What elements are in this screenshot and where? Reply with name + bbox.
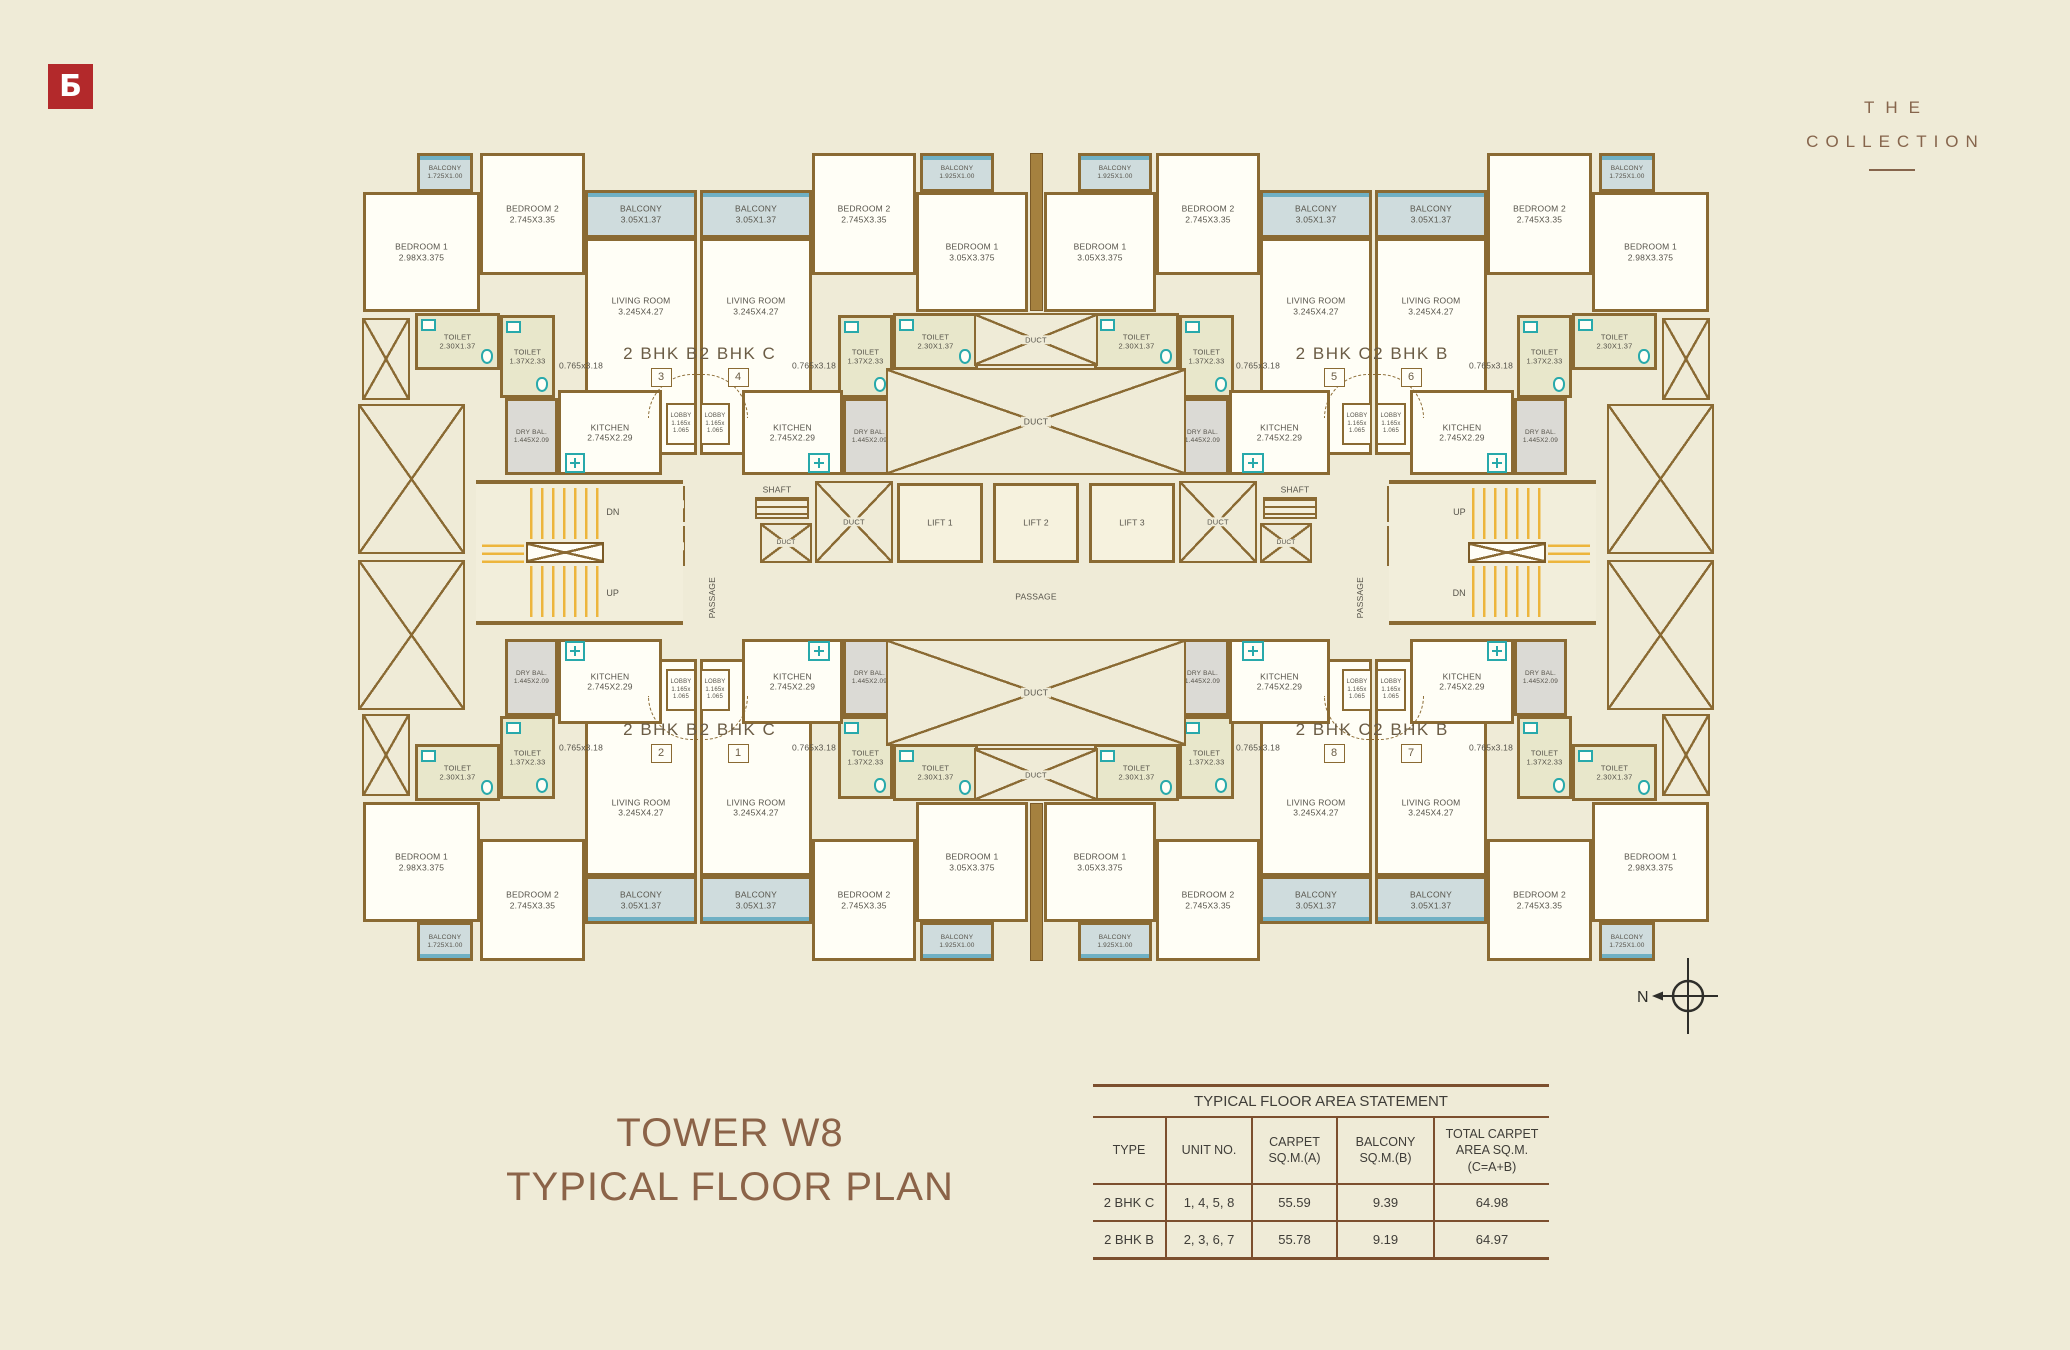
duct-main: DUCT	[886, 368, 1186, 475]
lift-2-label: LIFT 2	[998, 518, 1074, 529]
bedroom2-outer: BEDROOM 22.745X3.35	[480, 153, 585, 275]
duct-side-label: DUCT	[819, 517, 889, 526]
area-table-cell: 9.19	[1337, 1221, 1434, 1259]
shaft-duct-small: DUCT	[1260, 523, 1312, 563]
toilet-wide-outer: TOILET2.30X1.37	[415, 313, 500, 370]
toilet-tall-inner: TOILET1.37X2.33	[838, 315, 893, 398]
staircase-right-label-bottom: DN	[1453, 588, 1466, 598]
living-room-inner-label: LIVING ROOM3.245X4.27	[705, 797, 807, 818]
unit-2-number: 2	[651, 744, 672, 763]
staircase-left-part	[482, 542, 523, 564]
void-box-wide	[1607, 404, 1714, 554]
area-table-body: 2 BHK C1, 4, 5, 855.599.3964.982 BHK B2,…	[1093, 1184, 1549, 1259]
plan-title: TOWER W8 TYPICAL FLOOR PLAN	[430, 1106, 1030, 1214]
balcony-corner: BALCONY1.725X1.00	[417, 922, 473, 961]
balcony-inner-label: BALCONY3.05X1.37	[705, 203, 807, 224]
area-table-cell: 64.97	[1434, 1221, 1549, 1259]
page: Ƃ THE COLLECTION BEDROOM 12.98X3.375BEDR…	[0, 0, 2070, 1350]
staircase-left-part	[530, 488, 600, 539]
unit-6-number: 6	[1401, 368, 1422, 387]
shaft-label-label: SHAFT	[1275, 484, 1315, 495]
bedroom2-outer-label: BEDROOM 22.745X3.35	[1492, 889, 1587, 910]
bedroom2-outer: BEDROOM 22.745X3.35	[1487, 839, 1592, 961]
lobby-outer-label: LOBBY1.165x1.065	[670, 413, 692, 436]
area-table-cell: 2 BHK B	[1093, 1221, 1166, 1259]
toilet-wide-outer: TOILET2.30X1.37	[1572, 744, 1657, 801]
toilet-tall-outer-label: TOILET1.37X2.33	[1522, 748, 1567, 767]
toilet-tall-outer: TOILET1.37X2.33	[1517, 315, 1572, 398]
area-table-header: TOTAL CARPET AREA SQ.M. (C=A+B)	[1434, 1118, 1549, 1184]
dry-balcony-outer-label: DRY BAL.1.445X2.09	[1519, 669, 1562, 685]
shaft-label-label: SHAFT	[757, 484, 797, 495]
toilet-wide-inner-label: TOILET2.30X1.37	[1099, 332, 1174, 351]
void-box-wide	[358, 560, 465, 710]
void-box-narrow	[362, 714, 410, 796]
wash-point-outer	[1487, 453, 1507, 473]
bedroom1-corner: BEDROOM 12.98X3.375	[1592, 802, 1709, 922]
area-table: TYPEUNIT NO.CARPET SQ.M.(A)BALCONY SQ.M.…	[1093, 1118, 1549, 1260]
bedroom1-corner-label: BEDROOM 12.98X3.375	[368, 851, 475, 872]
plan-title-line2: TYPICAL FLOOR PLAN	[430, 1160, 1030, 1214]
lobby-inner: LOBBY1.165x1.065	[1342, 403, 1372, 445]
bedroom1-center: BEDROOM 13.05X3.375	[1044, 192, 1156, 312]
living-room-inner-label: LIVING ROOM3.245X4.27	[705, 296, 807, 317]
duct-mid-label: DUCT	[978, 770, 1094, 779]
toilet-tall-inner-label: TOILET1.37X2.33	[1184, 748, 1229, 767]
living-room-inner-label: LIVING ROOM3.245X4.27	[1265, 296, 1367, 317]
toilet-wide-outer: TOILET2.30X1.37	[1572, 313, 1657, 370]
plan-title-line1: TOWER W8	[430, 1106, 1030, 1160]
lobby-inner-label: LOBBY1.165x1.065	[704, 413, 726, 436]
unit-8-number: 8	[1324, 744, 1345, 763]
balcony-outer-label: BALCONY3.05X1.37	[590, 889, 692, 910]
duct-main-label: DUCT	[890, 416, 1182, 427]
unit-4-number: 4	[728, 368, 749, 387]
toilet-tall-outer: TOILET1.37X2.33	[500, 315, 555, 398]
lift-3: LIFT 3	[1089, 483, 1175, 563]
lobby-outer: LOBBY1.165x1.065	[1376, 669, 1406, 711]
kitchen-outer-label: KITCHEN2.745X2.29	[563, 671, 657, 692]
balcony-corner-label: BALCONY1.725X1.00	[422, 164, 468, 180]
wash-point-inner	[808, 453, 830, 473]
area-table-cell: 55.59	[1252, 1184, 1337, 1221]
area-table-cell: 55.78	[1252, 1221, 1337, 1259]
living-room-outer-label: LIVING ROOM3.245X4.27	[1380, 797, 1482, 818]
toilet-tall-outer: TOILET1.37X2.33	[1517, 716, 1572, 799]
balcony-inner-label: BALCONY3.05X1.37	[1265, 889, 1367, 910]
toilet-wide-inner-label: TOILET2.30X1.37	[898, 332, 973, 351]
area-table-cell: 64.98	[1434, 1184, 1549, 1221]
void-box-wide	[358, 404, 465, 554]
lobby-outer: LOBBY1.165x1.065	[666, 669, 696, 711]
passage-side-label: PASSAGE	[704, 570, 720, 626]
area-table-header: CARPET SQ.M.(A)	[1252, 1118, 1337, 1184]
bedroom1-corner-label: BEDROOM 12.98X3.375	[1597, 241, 1704, 262]
lobby-outer-label: LOBBY1.165x1.065	[670, 679, 692, 702]
duct-main: DUCT	[886, 639, 1186, 746]
area-table-row: 2 BHK C1, 4, 5, 855.599.3964.98	[1093, 1184, 1549, 1221]
area-table-cell: 9.39	[1337, 1184, 1434, 1221]
duct-mid: DUCT	[974, 748, 1098, 801]
void-box-narrow	[1662, 714, 1710, 796]
dry-balcony-outer-label: DRY BAL.1.445X2.09	[1519, 428, 1562, 444]
balcony-center: BALCONY1.925X1.00	[920, 922, 994, 961]
balcony-outer: BALCONY3.05X1.37	[1375, 876, 1487, 924]
bedroom1-center: BEDROOM 13.05X3.375	[1044, 802, 1156, 922]
bedroom2-inner: BEDROOM 22.745X3.35	[812, 153, 916, 275]
toilet-tall-inner: TOILET1.37X2.33	[838, 716, 893, 799]
balcony-corner-label: BALCONY1.725X1.00	[422, 933, 468, 949]
wash-point-inner	[1242, 641, 1264, 661]
balcony-corner: BALCONY1.725X1.00	[417, 153, 473, 192]
lobby-inner-label: LOBBY1.165x1.065	[1346, 413, 1368, 436]
balcony-outer: BALCONY3.05X1.37	[585, 190, 697, 238]
area-statement: TYPICAL FLOOR AREA STATEMENT TYPEUNIT NO…	[1093, 1084, 1549, 1260]
bedroom1-corner: BEDROOM 12.98X3.375	[363, 802, 480, 922]
balcony-center-label: BALCONY1.925X1.00	[925, 164, 989, 180]
balcony-outer-label: BALCONY3.05X1.37	[590, 203, 692, 224]
lobby-inner: LOBBY1.165x1.065	[700, 669, 730, 711]
dry-balcony-outer-label: DRY BAL.1.445X2.09	[510, 669, 553, 685]
shaft-grill	[1263, 497, 1317, 519]
compass-arrow-icon	[1652, 992, 1663, 1001]
toilet-wide-outer: TOILET2.30X1.37	[415, 744, 500, 801]
bedroom2-inner: BEDROOM 22.745X3.35	[812, 839, 916, 961]
duct-side: DUCT	[815, 481, 893, 563]
bedroom1-center-label: BEDROOM 13.05X3.375	[921, 241, 1023, 262]
dry-balcony-inner-label: DRY BAL.1.445X2.09	[848, 669, 891, 685]
toilet-wide-inner: TOILET2.30X1.37	[893, 313, 978, 370]
area-table-row: 2 BHK B2, 3, 6, 755.789.1964.97	[1093, 1221, 1549, 1259]
dry-balcony-inner-label: DRY BAL.1.445X2.09	[1181, 428, 1224, 444]
balcony-center-label: BALCONY1.925X1.00	[925, 933, 989, 949]
unit-3-number: 3	[651, 368, 672, 387]
toilet-wide-outer-label: TOILET2.30X1.37	[1577, 332, 1652, 351]
dry-balcony-inner-label: DRY BAL.1.445X2.09	[848, 428, 891, 444]
unit-6-type: 2 BHK B	[1351, 344, 1471, 364]
bedroom1-corner: BEDROOM 12.98X3.375	[363, 192, 480, 312]
living-room-outer-label: LIVING ROOM3.245X4.27	[590, 797, 692, 818]
wash-point-outer	[565, 453, 585, 473]
balcony-outer-label: BALCONY3.05X1.37	[1380, 203, 1482, 224]
void-box-wide	[1607, 560, 1714, 710]
balcony-inner: BALCONY3.05X1.37	[700, 876, 812, 924]
lift-1-label: LIFT 1	[902, 518, 978, 529]
shaft-duct-small: DUCT	[760, 523, 812, 563]
duct-main-label: DUCT	[890, 687, 1182, 698]
lobby-inner-label: LOBBY1.165x1.065	[1346, 679, 1368, 702]
toilet-wide-inner: TOILET2.30X1.37	[1094, 744, 1179, 801]
living-room-outer-label: LIVING ROOM3.245X4.27	[590, 296, 692, 317]
balcony-inner: BALCONY3.05X1.37	[700, 190, 812, 238]
lobby-outer: LOBBY1.165x1.065	[1376, 403, 1406, 445]
area-table-header: UNIT NO.	[1166, 1118, 1252, 1184]
passage-side-label: PASSAGE	[1352, 570, 1368, 626]
shaft-duct-small-label: DUCT	[1264, 539, 1308, 547]
balcony-center: BALCONY1.925X1.00	[1078, 922, 1152, 961]
balcony-center: BALCONY1.925X1.00	[920, 153, 994, 192]
staircase-right-part	[1472, 566, 1542, 617]
area-table-cell: 2, 3, 6, 7	[1166, 1221, 1252, 1259]
toilet-wide-outer-label: TOILET2.30X1.37	[420, 763, 495, 782]
dry-balcony-outer: DRY BAL.1.445X2.09	[505, 639, 558, 716]
staircase-right-part	[1468, 542, 1547, 564]
duct-mid-label: DUCT	[978, 335, 1094, 344]
staircase-right-part	[1548, 542, 1589, 564]
dry-balcony-outer: DRY BAL.1.445X2.09	[1514, 639, 1567, 716]
balcony-inner: BALCONY3.05X1.37	[1260, 190, 1372, 238]
living-room-outer-label: LIVING ROOM3.245X4.27	[1380, 296, 1482, 317]
lobby-inner: LOBBY1.165x1.065	[1342, 669, 1372, 711]
dry-balcony-outer: DRY BAL.1.445X2.09	[505, 398, 558, 475]
bedroom1-center: BEDROOM 13.05X3.375	[916, 192, 1028, 312]
toilet-tall-inner: TOILET1.37X2.33	[1179, 716, 1234, 799]
shaft-duct-small-label: DUCT	[764, 539, 808, 547]
wash-point-outer	[1487, 641, 1507, 661]
balcony-outer: BALCONY3.05X1.37	[1375, 190, 1487, 238]
kitchen-outer-label: KITCHEN2.745X2.29	[563, 422, 657, 443]
lobby-inner-label: LOBBY1.165x1.065	[704, 679, 726, 702]
balcony-center: BALCONY1.925X1.00	[1078, 153, 1152, 192]
bedroom1-center-label: BEDROOM 13.05X3.375	[921, 851, 1023, 872]
lobby-outer-label: LOBBY1.165x1.065	[1380, 413, 1402, 436]
duct-side-label: DUCT	[1183, 517, 1253, 526]
balcony-center-label: BALCONY1.925X1.00	[1083, 164, 1147, 180]
unit-7: 2 BHK B7	[1351, 720, 1471, 763]
lobby-outer-label: LOBBY1.165x1.065	[1380, 679, 1402, 702]
toilet-tall-outer-label: TOILET1.37X2.33	[505, 347, 550, 366]
unit-1-type: 2 BHK C	[678, 720, 798, 740]
bedroom2-outer-label: BEDROOM 22.745X3.35	[1492, 203, 1587, 224]
staircase-left: DNUP	[476, 480, 683, 625]
unit-4-type: 2 BHK C	[678, 344, 798, 364]
lobby-outer: LOBBY1.165x1.065	[666, 403, 696, 445]
toilet-wide-inner: TOILET2.30X1.37	[893, 744, 978, 801]
staircase-right-part	[1472, 488, 1542, 539]
staircase-left-part	[530, 566, 600, 617]
toilet-tall-outer-label: TOILET1.37X2.33	[505, 748, 550, 767]
toilet-tall-inner-label: TOILET1.37X2.33	[843, 347, 888, 366]
balcony-corner-label: BALCONY1.725X1.00	[1604, 164, 1650, 180]
duct-side: DUCT	[1179, 481, 1257, 563]
passage-center-label-label: PASSAGE	[994, 592, 1078, 603]
bedroom2-inner-label: BEDROOM 22.745X3.35	[1161, 203, 1255, 224]
balcony-inner-label: BALCONY3.05X1.37	[705, 889, 807, 910]
void-box-narrow	[362, 318, 410, 400]
living-room-inner-label: LIVING ROOM3.245X4.27	[1265, 797, 1367, 818]
center-wall-column	[1030, 153, 1043, 311]
bedroom1-corner-label: BEDROOM 12.98X3.375	[1597, 851, 1704, 872]
kitchen-outer-label: KITCHEN2.745X2.29	[1415, 671, 1509, 692]
passage-side-label-label: PASSAGE	[1355, 577, 1366, 618]
bedroom1-center-label: BEDROOM 13.05X3.375	[1049, 241, 1151, 262]
staircase-left-label-top: DN	[606, 507, 619, 517]
toilet-tall-inner: TOILET1.37X2.33	[1179, 315, 1234, 398]
area-table-cell: 2 BHK C	[1093, 1184, 1166, 1221]
unit-5-number: 5	[1324, 368, 1345, 387]
toilet-tall-outer-label: TOILET1.37X2.33	[1522, 347, 1567, 366]
balcony-center-label: BALCONY1.925X1.00	[1083, 933, 1147, 949]
unit-6: 2 BHK B6	[1351, 344, 1471, 387]
toilet-wide-inner-label: TOILET2.30X1.37	[898, 763, 973, 782]
toilet-wide-inner-label: TOILET2.30X1.37	[1099, 763, 1174, 782]
wash-point-inner	[808, 641, 830, 661]
passage-side-label-label: PASSAGE	[707, 577, 718, 618]
unit-4: 2 BHK C4	[678, 344, 798, 387]
bedroom1-center: BEDROOM 13.05X3.375	[916, 802, 1028, 922]
toilet-tall-inner-label: TOILET1.37X2.33	[843, 748, 888, 767]
kitchen-inner-label: KITCHEN2.745X2.29	[1234, 422, 1325, 443]
area-table-header-row: TYPEUNIT NO.CARPET SQ.M.(A)BALCONY SQ.M.…	[1093, 1118, 1549, 1184]
kitchen-inner-label: KITCHEN2.745X2.29	[1234, 671, 1325, 692]
bedroom2-inner: BEDROOM 22.745X3.35	[1156, 153, 1260, 275]
passage-center-label: PASSAGE	[992, 590, 1080, 604]
unit-1: 2 BHK C1	[678, 720, 798, 763]
toilet-tall-inner-label: TOILET1.37X2.33	[1184, 347, 1229, 366]
bedroom2-outer-label: BEDROOM 22.745X3.35	[485, 889, 580, 910]
dry-balcony-outer: DRY BAL.1.445X2.09	[1514, 398, 1567, 475]
floor-plan: BEDROOM 12.98X3.375BEDROOM 12.98X3.375BE…	[0, 0, 2070, 1350]
lobby-inner: LOBBY1.165x1.065	[700, 403, 730, 445]
area-table-header: TYPE	[1093, 1118, 1166, 1184]
lift-2: LIFT 2	[993, 483, 1079, 563]
wash-point-inner	[1242, 453, 1264, 473]
north-compass: N	[1636, 954, 1732, 1038]
lift-1: LIFT 1	[897, 483, 983, 563]
bedroom2-inner-label: BEDROOM 22.745X3.35	[1161, 889, 1255, 910]
wash-point-outer	[565, 641, 585, 661]
unit-1-number: 1	[728, 744, 749, 763]
area-table-title: TYPICAL FLOOR AREA STATEMENT	[1093, 1084, 1549, 1118]
compass-n-label: N	[1637, 989, 1649, 1006]
bedroom2-outer: BEDROOM 22.745X3.35	[480, 839, 585, 961]
void-box-narrow	[1662, 318, 1710, 400]
bedroom2-outer-label: BEDROOM 22.745X3.35	[485, 203, 580, 224]
dry-balcony-outer-label: DRY BAL.1.445X2.09	[510, 428, 553, 444]
shaft-grill	[755, 497, 809, 519]
lift-3-label: LIFT 3	[1094, 518, 1170, 529]
bedroom1-corner-label: BEDROOM 12.98X3.375	[368, 241, 475, 262]
kitchen-inner-label: KITCHEN2.745X2.29	[747, 422, 838, 443]
unit-7-number: 7	[1401, 744, 1422, 763]
balcony-outer-label: BALCONY3.05X1.37	[1380, 889, 1482, 910]
unit-7-type: 2 BHK B	[1351, 720, 1471, 740]
bedroom1-corner: BEDROOM 12.98X3.375	[1592, 192, 1709, 312]
shaft-label: SHAFT	[1273, 484, 1317, 495]
kitchen-inner-label: KITCHEN2.745X2.29	[747, 671, 838, 692]
staircase-left-label-bottom: UP	[606, 588, 619, 598]
balcony-corner: BALCONY1.725X1.00	[1599, 153, 1655, 192]
kitchen-outer-label: KITCHEN2.745X2.29	[1415, 422, 1509, 443]
bedroom1-center-label: BEDROOM 13.05X3.375	[1049, 851, 1151, 872]
balcony-inner-label: BALCONY3.05X1.37	[1265, 203, 1367, 224]
dry-balcony-inner-label: DRY BAL.1.445X2.09	[1181, 669, 1224, 685]
area-table-header: BALCONY SQ.M.(B)	[1337, 1118, 1434, 1184]
balcony-inner: BALCONY3.05X1.37	[1260, 876, 1372, 924]
bedroom2-inner-label: BEDROOM 22.745X3.35	[817, 203, 911, 224]
area-table-cell: 1, 4, 5, 8	[1166, 1184, 1252, 1221]
bedroom2-inner-label: BEDROOM 22.745X3.35	[817, 889, 911, 910]
duct-mid: DUCT	[974, 313, 1098, 366]
toilet-tall-outer: TOILET1.37X2.33	[500, 716, 555, 799]
toilet-wide-outer-label: TOILET2.30X1.37	[420, 332, 495, 351]
passage-dim-outer-label: 0.765x3.18	[1463, 743, 1519, 754]
staircase-right: UPDN	[1389, 480, 1596, 625]
balcony-outer: BALCONY3.05X1.37	[585, 876, 697, 924]
balcony-corner-label: BALCONY1.725X1.00	[1604, 933, 1650, 949]
passage-dim-outer-label: 0.765x3.18	[1463, 361, 1519, 372]
center-wall-column	[1030, 803, 1043, 961]
staircase-left-part	[526, 542, 605, 564]
bedroom2-outer: BEDROOM 22.745X3.35	[1487, 153, 1592, 275]
shaft-label: SHAFT	[755, 484, 799, 495]
toilet-wide-inner: TOILET2.30X1.37	[1094, 313, 1179, 370]
toilet-wide-outer-label: TOILET2.30X1.37	[1577, 763, 1652, 782]
staircase-right-label-top: UP	[1453, 507, 1466, 517]
bedroom2-inner: BEDROOM 22.745X3.35	[1156, 839, 1260, 961]
